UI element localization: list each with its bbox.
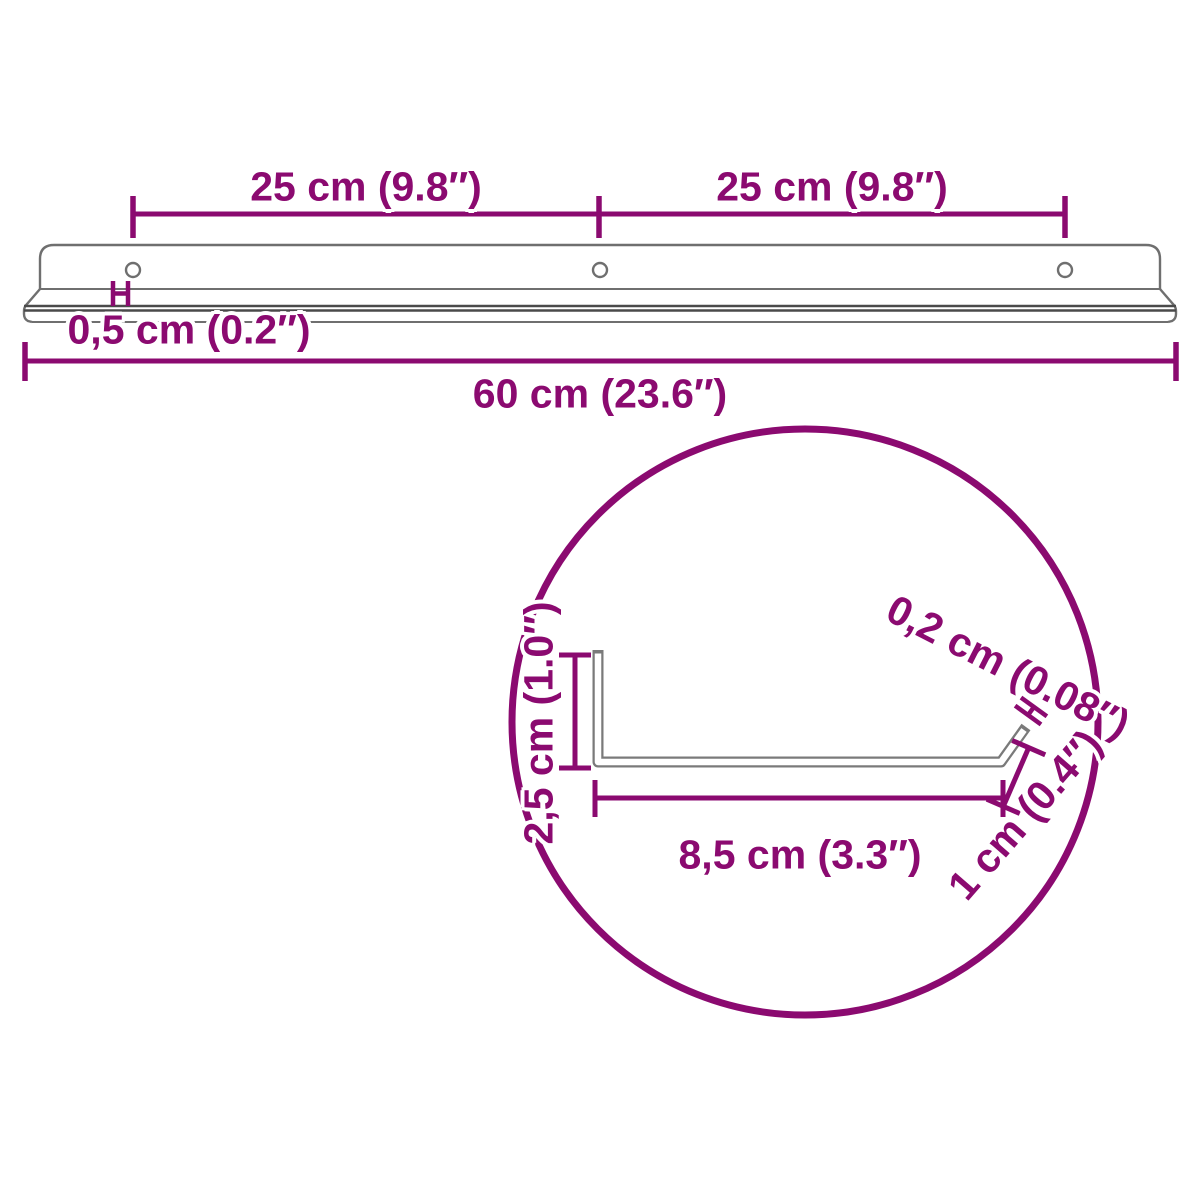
rail-thickness-label: 0,5 cm (0.2″): [68, 310, 311, 351]
dimension-diagram: 25 cm (9.8″) 25 cm (9.8″) 0,5 cm (0.2″) …: [0, 0, 1200, 1200]
overall-width-label: 60 cm (23.6″): [473, 374, 727, 415]
diagram-linework: [0, 0, 1200, 1200]
mounting-hole-center: [593, 263, 607, 277]
hole-spacing-left-label: 25 cm (9.8″): [250, 167, 482, 208]
mounting-hole-left: [126, 263, 140, 277]
profile-inner-white: [598, 654, 1024, 763]
rail-thickness-marker: [113, 281, 128, 306]
shelf-depth-label: 8,5 cm (3.3″): [679, 835, 922, 876]
mounting-hole-right: [1058, 263, 1072, 277]
hole-spacing-right-label: 25 cm (9.8″): [716, 167, 948, 208]
profile-height-label: 2,5 cm (1.0″): [519, 602, 560, 845]
detail-dimensions: [559, 655, 1047, 817]
